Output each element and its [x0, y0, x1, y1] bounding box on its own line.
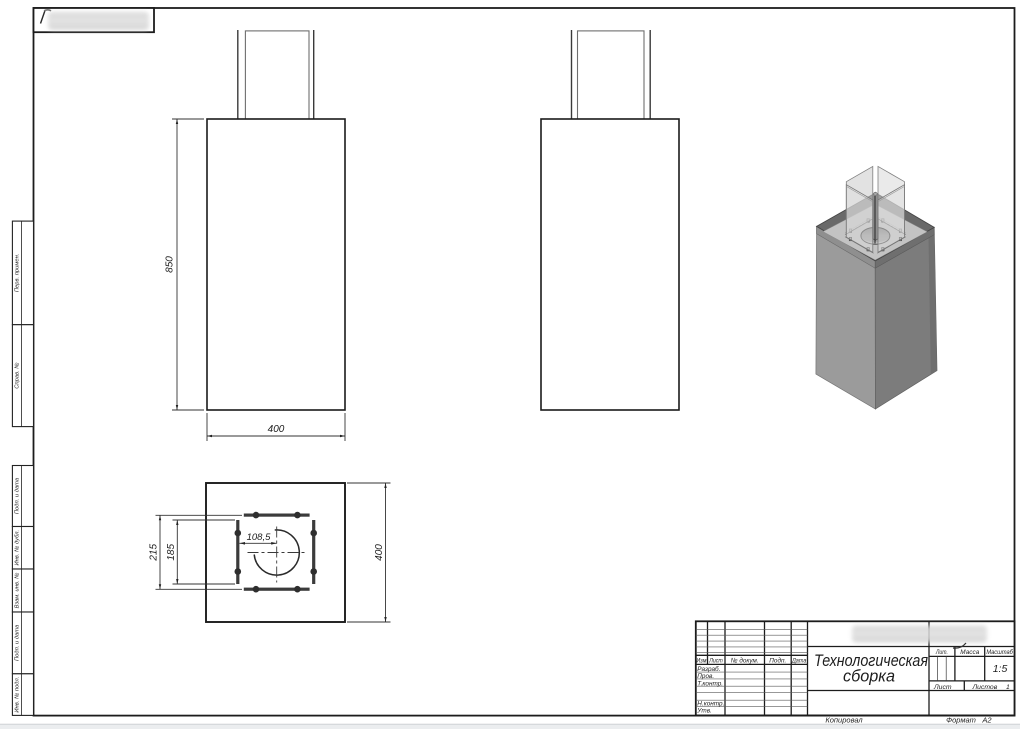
- svg-text:Взам. инв. №: Взам. инв. №: [15, 573, 21, 609]
- svg-text:Перв. примен.: Перв. примен.: [15, 254, 21, 293]
- svg-text:Изм: Изм: [696, 658, 706, 665]
- svg-text:Т.контр.: Т.контр.: [697, 680, 723, 687]
- svg-text:Лист: Лист: [933, 684, 952, 691]
- svg-text:400: 400: [374, 544, 385, 561]
- svg-text:Дата: Дата: [791, 658, 806, 665]
- svg-text:Справ. №: Справ. №: [15, 362, 21, 388]
- svg-text:Масштаб: Масштаб: [986, 648, 1013, 656]
- svg-text:Подп. и дата: Подп. и дата: [15, 624, 21, 661]
- svg-text:Н.контр.: Н.контр.: [697, 700, 724, 707]
- svg-text:Инв. № подл.: Инв. № подл.: [15, 677, 21, 713]
- svg-text:сборка: сборка: [843, 668, 895, 686]
- svg-text:Копировал: Копировал: [825, 716, 863, 725]
- svg-text:1:5: 1:5: [993, 663, 1008, 675]
- svg-text:Листов: Листов: [972, 684, 998, 691]
- svg-text:Пров.: Пров.: [697, 673, 714, 680]
- svg-text:Разраб.: Разраб.: [697, 665, 720, 673]
- svg-text:1: 1: [1006, 684, 1010, 691]
- svg-text:108,5: 108,5: [247, 532, 271, 543]
- svg-text:185: 185: [166, 544, 177, 561]
- svg-text:Лист: Лист: [708, 658, 723, 665]
- svg-text:Лит.: Лит.: [935, 649, 948, 656]
- svg-text:А2: А2: [981, 716, 992, 725]
- svg-text:Подп. и дата: Подп. и дата: [15, 477, 21, 514]
- svg-text:Формат: Формат: [946, 716, 976, 725]
- svg-text:Утв.: Утв.: [696, 708, 712, 715]
- svg-text:Инв. № дубл.: Инв. № дубл.: [15, 530, 21, 566]
- svg-text:Подп.: Подп.: [769, 657, 786, 665]
- svg-text:Масса: Масса: [960, 649, 979, 656]
- svg-text:№ докум.: № докум.: [731, 657, 759, 665]
- svg-text:215: 215: [149, 544, 160, 562]
- svg-text:850: 850: [165, 256, 176, 273]
- svg-text:400: 400: [268, 424, 285, 435]
